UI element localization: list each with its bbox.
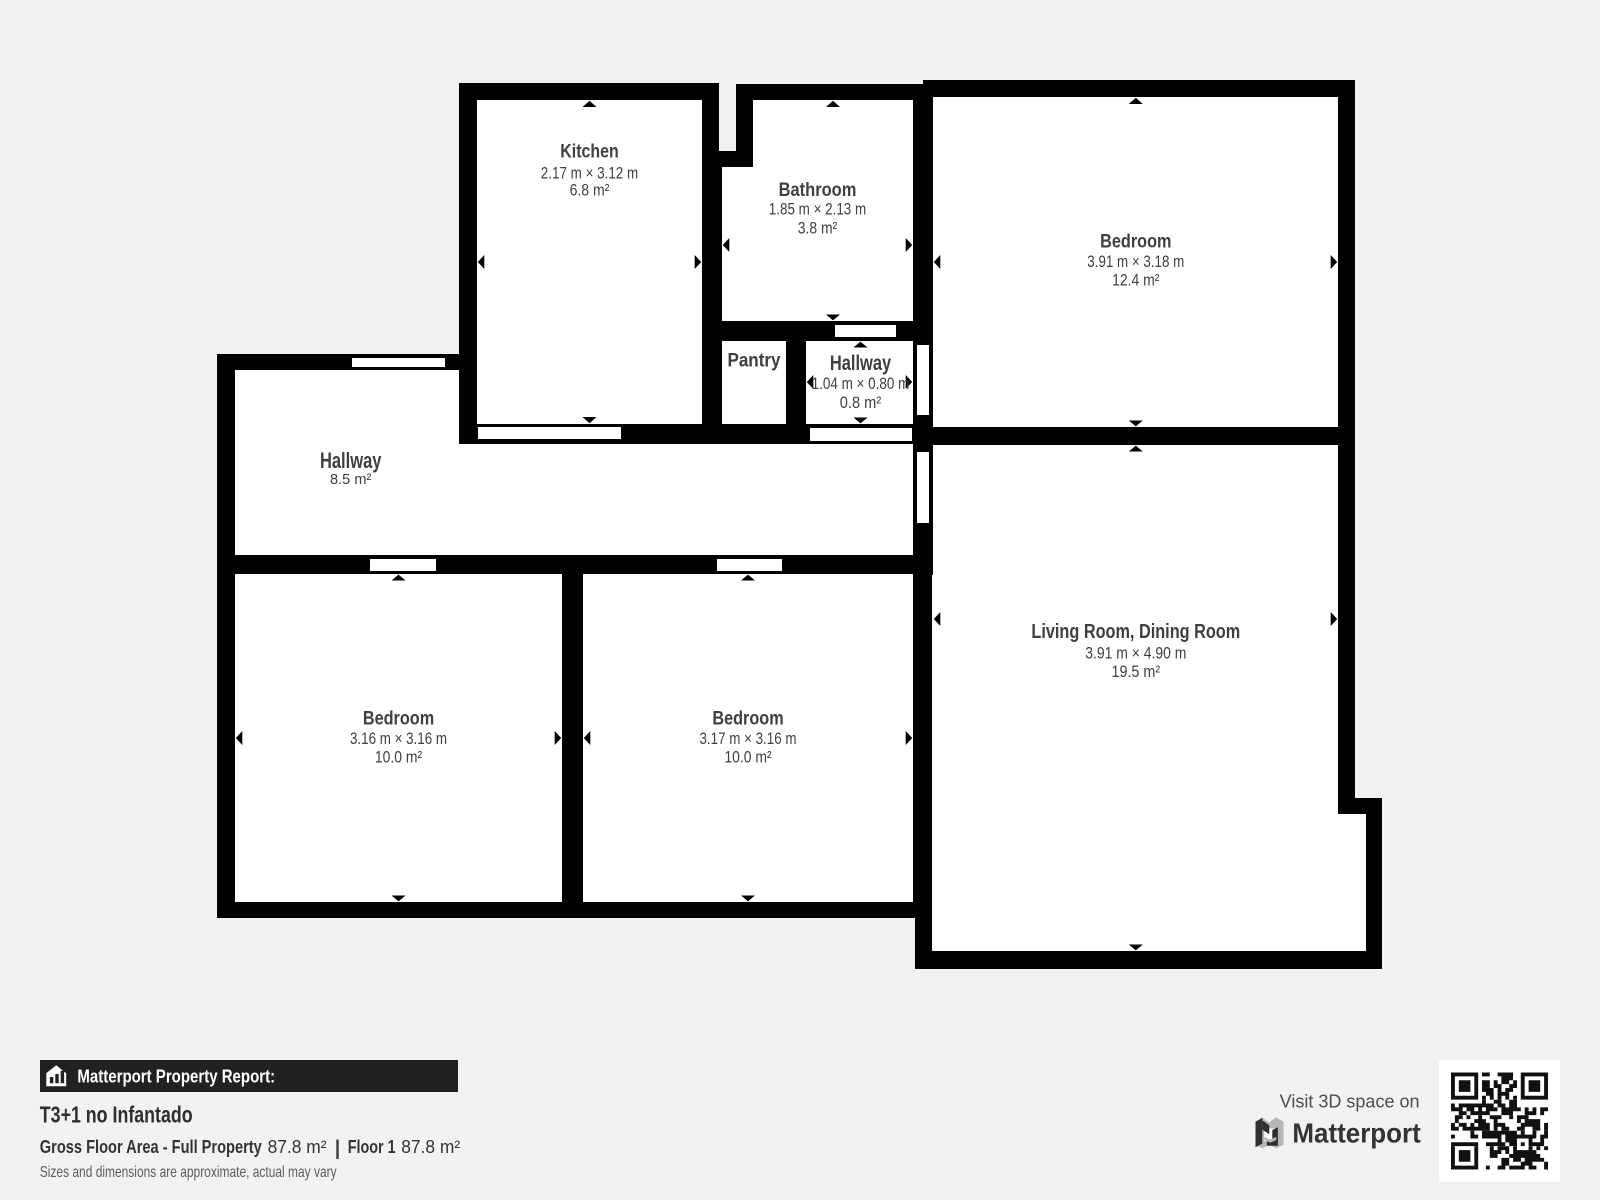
svg-text:10.0 m²: 10.0 m² [724, 749, 772, 767]
svg-text:Visit 3D space on: Visit 3D space on [1280, 1090, 1420, 1111]
svg-text:Bathroom: Bathroom [779, 179, 857, 201]
svg-text:3.91 m × 4.90 m: 3.91 m × 4.90 m [1085, 644, 1186, 662]
svg-text:1.04 m × 0.80 m: 1.04 m × 0.80 m [812, 375, 910, 393]
svg-text:0.8 m²: 0.8 m² [840, 394, 882, 412]
svg-text:Floor 1: Floor 1 [348, 1137, 396, 1157]
svg-text:Hallway: Hallway [320, 448, 382, 473]
svg-text:Pantry: Pantry [727, 350, 780, 372]
svg-text:Sizes and dimensions are appro: Sizes and dimensions are approximate, ac… [40, 1164, 337, 1181]
svg-text:87.8 m²: 87.8 m² [401, 1137, 460, 1157]
svg-text:Living Room, Dining Room: Living Room, Dining Room [1031, 621, 1240, 643]
svg-text:10.0 m²: 10.0 m² [375, 749, 423, 767]
svg-text:Bedroom: Bedroom [1100, 231, 1171, 253]
svg-text:Bedroom: Bedroom [712, 708, 783, 730]
svg-text:3.8 m²: 3.8 m² [798, 220, 838, 238]
svg-text:19.5 m²: 19.5 m² [1112, 663, 1161, 681]
svg-text:6.8 m²: 6.8 m² [570, 182, 610, 200]
svg-text:3.17 m × 3.16 m: 3.17 m × 3.16 m [700, 730, 797, 748]
svg-text:87.8 m²: 87.8 m² [268, 1137, 327, 1157]
svg-text:2.17 m × 3.12 m: 2.17 m × 3.12 m [541, 165, 638, 183]
svg-text:1.85 m × 2.13 m: 1.85 m × 2.13 m [769, 200, 866, 218]
svg-text:3.16 m × 3.16 m: 3.16 m × 3.16 m [350, 730, 447, 748]
svg-text:Bedroom: Bedroom [363, 708, 434, 730]
svg-text:12.4 m²: 12.4 m² [1112, 272, 1160, 290]
svg-text:Kitchen: Kitchen [560, 141, 618, 163]
svg-text:Gross Floor Area - Full Proper: Gross Floor Area - Full Property [40, 1137, 262, 1157]
svg-text:Matterport Property Report:: Matterport Property Report: [77, 1067, 275, 1087]
svg-text:T3+1 no Infantado: T3+1 no Infantado [40, 1102, 193, 1128]
svg-text:Matterport: Matterport [1292, 1118, 1420, 1149]
svg-text:8.5 m²: 8.5 m² [330, 471, 371, 488]
svg-text:3.91 m × 3.18 m: 3.91 m × 3.18 m [1087, 253, 1184, 271]
svg-text:Hallway: Hallway [830, 352, 892, 375]
